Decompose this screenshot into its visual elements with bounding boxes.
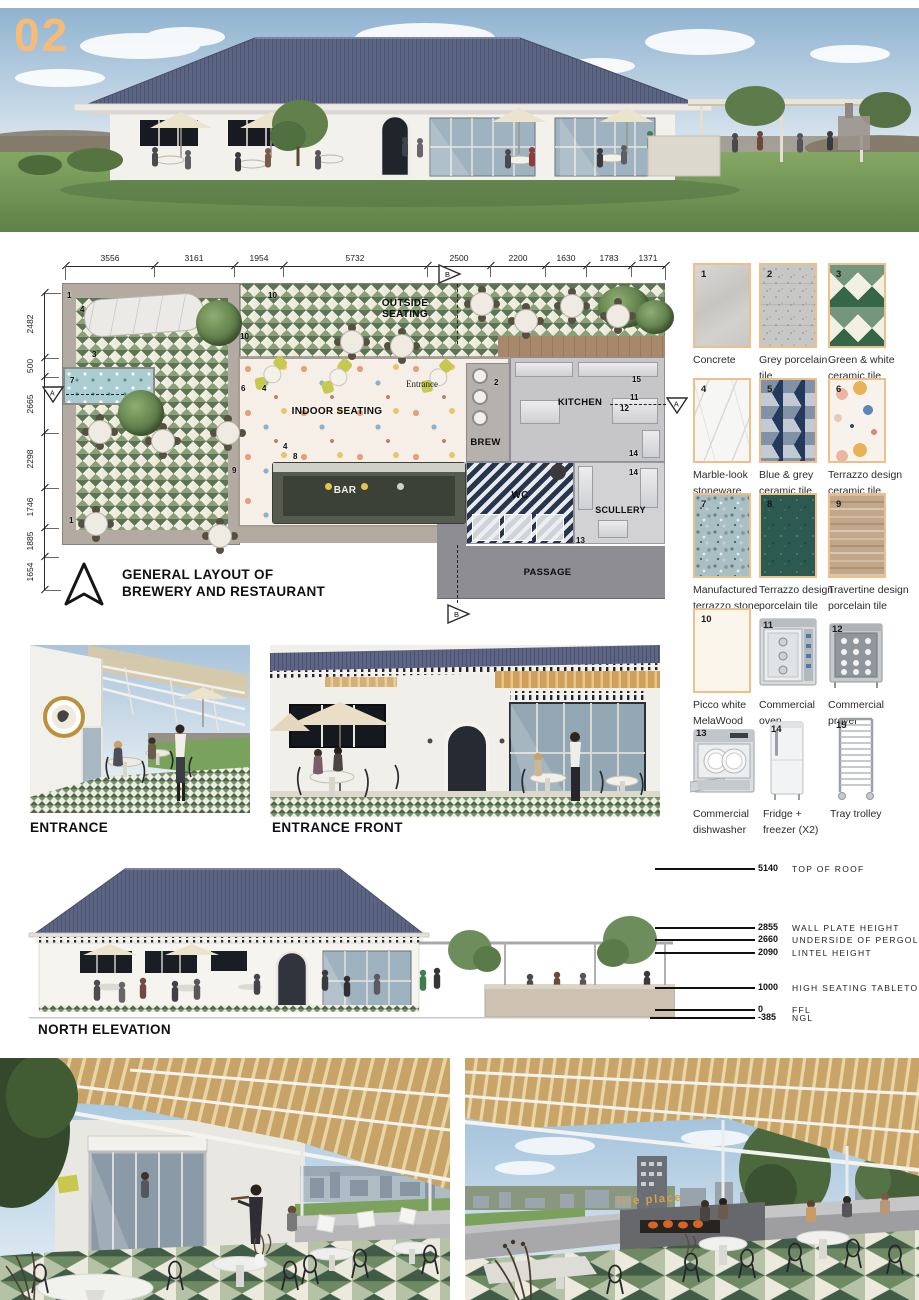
dim-extension [154, 266, 155, 277]
dimension-label: 1371 [639, 253, 658, 263]
plan-title-line2: BREWERY AND RESTAURANT [122, 583, 325, 600]
dimension-label: 1630 [557, 253, 576, 263]
dim-extension [545, 266, 546, 277]
dimension-label: 1654 [25, 554, 35, 590]
dim-extension [45, 358, 59, 359]
material-number: 7 [701, 499, 706, 510]
material-label: Terrazzo design [759, 582, 833, 598]
plan-table [151, 429, 175, 453]
room-label-scullery: SCULLERY [578, 505, 663, 515]
plan-material-marker: 7 [70, 376, 74, 385]
material-number: 6 [836, 384, 841, 395]
plan-material-marker: 8 [293, 452, 297, 461]
plan-brew-tank [472, 410, 488, 426]
room-label-bar: BAR [320, 485, 370, 496]
room-label-indoor-seating: INDOOR SEATING [262, 406, 412, 417]
plan-brew-tank [472, 368, 488, 384]
plan-kitchen-equipment [642, 430, 660, 458]
plan-material-marker: 4 [283, 442, 287, 451]
dim-extension [234, 266, 235, 277]
material-swatch-terrazzo-ceramic: 6 [828, 378, 886, 463]
plan-kitchen-bench [515, 362, 573, 377]
material-swatch-travertine: 9 [828, 493, 886, 578]
plan-table [390, 334, 414, 358]
dim-extension [65, 266, 66, 280]
material-swatch-blue-grey-cube: 5 [759, 378, 817, 463]
plan-material-marker: 10 [268, 291, 277, 300]
plan-title-line1: GENERAL LAYOUT OF [122, 566, 325, 583]
plan-material-marker: 13 [576, 536, 585, 545]
dim-extension [45, 377, 59, 378]
level-line [650, 1017, 755, 1019]
north-elevation-drawing [25, 855, 675, 1023]
plan-title: GENERAL LAYOUT OF BREWERY AND RESTAURANT [122, 566, 325, 600]
room-label-outside-seating: OUTSIDE SEATING [330, 298, 480, 320]
plan-material-marker: 12 [620, 404, 629, 413]
dim-extension [45, 293, 61, 294]
level-value: 2090 [758, 947, 778, 957]
material-label: dishwasher [693, 822, 746, 838]
level-label: HIGH SEATING TABLETOP [792, 983, 919, 993]
plan-scullery-bench [598, 520, 628, 538]
hero-exterior-illustration [0, 8, 919, 232]
room-label-brew: BREW [458, 437, 513, 448]
dimension-label: 2500 [450, 253, 469, 263]
entrance-render [30, 645, 250, 813]
section-cut-line [457, 545, 458, 603]
material-label: porcelain tile [828, 598, 887, 614]
entrance-front-render [270, 645, 660, 817]
dim-extension [631, 266, 632, 277]
terrace-render-right: fire place [465, 1058, 919, 1300]
plan-left-dimension-line [44, 293, 45, 590]
plan-material-marker: 9 [232, 466, 236, 475]
material-label: Fridge + [763, 806, 802, 822]
dimension-label: 1783 [600, 253, 619, 263]
material-label: Grey porcelain [759, 352, 827, 368]
plan-material-marker: 10 [240, 332, 249, 341]
terrace-right-illustration [465, 1058, 919, 1300]
material-label: Commercial [693, 806, 749, 822]
material-label: Commercial [828, 697, 884, 713]
material-number: 1 [701, 269, 706, 280]
plan-table [606, 304, 630, 328]
material-number: 11 [763, 620, 773, 631]
dim-extension [45, 488, 59, 489]
plan-table [216, 421, 240, 445]
plan-planter-tree [196, 300, 242, 346]
section-flag-icon: A [666, 397, 688, 415]
plan-table [84, 512, 108, 536]
material-label: Blue & grey [759, 467, 813, 483]
dim-extension [283, 266, 284, 277]
dimension-label: 2200 [509, 253, 528, 263]
plan-material-marker: 11 [630, 393, 638, 402]
section-flag-icon: B [438, 264, 462, 284]
level-label: WALL PLATE HEIGHT [792, 923, 900, 933]
level-label: UNDERSIDE OF PERGOLA [792, 935, 919, 945]
dim-extension [45, 433, 59, 434]
dim-extension [586, 266, 587, 277]
plan-material-marker: 4 [262, 384, 266, 393]
plan-material-marker: 2 [494, 378, 498, 387]
plan-material-marker: 4 [80, 305, 84, 314]
dim-extension [490, 266, 491, 277]
dimension-label: 5732 [346, 253, 365, 263]
dimension-label: 1746 [25, 489, 35, 525]
material-swatch-green-white-ceramic: 3 [828, 263, 886, 348]
plan-south-walkway [238, 527, 438, 543]
equipment-photo-oven: 11 [757, 616, 819, 690]
material-number: 13 [696, 728, 707, 739]
level-value: 5140 [758, 863, 778, 873]
plan-wc-stall [472, 514, 500, 541]
equipment-photo-prover: 12 [826, 620, 886, 690]
material-swatch-marble: 4 [693, 378, 751, 463]
level-line [655, 952, 755, 954]
level-line [655, 987, 755, 989]
page-number: 02 [14, 8, 69, 62]
material-swatch-picco-melawood: 10 [693, 608, 751, 693]
level-line [655, 1009, 755, 1011]
plan-scullery-bench [640, 468, 658, 508]
plan-material-marker: 15 [632, 375, 641, 384]
plan-material-marker: 1 [69, 516, 73, 525]
plan-material-marker: 3 [92, 350, 96, 359]
room-label-passage: PASSAGE [500, 567, 595, 578]
level-line [655, 939, 755, 941]
material-label: Marble-look [693, 467, 748, 483]
plan-material-marker: 14 [629, 468, 638, 477]
section-letter: B [445, 270, 450, 279]
dimension-label: 2298 [25, 441, 35, 477]
section-flag-icon: B [447, 604, 471, 624]
equipment-photo-tray-trolley: 15 [830, 716, 882, 802]
dim-extension [45, 590, 61, 591]
plan-wc-basin [550, 464, 566, 480]
equipment-photo-fridge: 14 [765, 720, 809, 802]
dim-tick [662, 262, 670, 270]
material-label: freezer (X2) [763, 822, 818, 838]
entrance-render-label: ENTRANCE [30, 820, 108, 835]
material-label: Concrete [693, 352, 736, 368]
entrance-front-illustration [270, 645, 660, 817]
room-label-line: SEATING [330, 309, 480, 320]
material-number: 14 [771, 724, 782, 735]
plan-bar-back [283, 476, 455, 516]
level-value: 2660 [758, 934, 778, 944]
material-number: 8 [767, 499, 772, 510]
section-letter: B [454, 610, 459, 619]
level-value: 2855 [758, 922, 778, 932]
dim-extension [427, 266, 428, 277]
plan-table [88, 420, 112, 444]
material-number: 2 [767, 269, 772, 280]
material-label: Manufactured [693, 582, 757, 598]
level-value: -385 [758, 1012, 776, 1022]
material-number: 3 [836, 269, 841, 280]
dimension-label: 3161 [185, 253, 204, 263]
section-letter: A [674, 402, 679, 409]
dimension-label: 3556 [101, 253, 120, 263]
plan-table [560, 294, 584, 318]
dimension-label: 500 [25, 348, 35, 384]
material-swatch-concrete: 1 [693, 263, 751, 348]
entrance-front-render-label: ENTRANCE FRONT [272, 820, 403, 835]
section-cut-line [66, 394, 124, 395]
material-swatch-manufactured-terrazzo: 7 [693, 493, 751, 578]
level-line [655, 868, 755, 870]
plan-kitchen-bench [578, 362, 658, 377]
plan-table [208, 524, 232, 548]
level-value: 1000 [758, 982, 778, 992]
room-label-kitchen: KITCHEN [540, 397, 620, 408]
plan-brew-tank [472, 389, 488, 405]
dimension-label: 2482 [25, 306, 35, 342]
material-label: Picco white [693, 697, 746, 713]
plan-bar-sink [397, 483, 404, 490]
material-number: 9 [836, 499, 841, 510]
section-letter: A [50, 391, 55, 398]
dim-extension [665, 266, 666, 280]
north-arrow-icon [62, 560, 106, 608]
plan-bar-countertop [273, 463, 465, 472]
material-number: 10 [701, 614, 712, 625]
material-label: Tray trolley [830, 806, 882, 822]
dim-extension [45, 528, 59, 529]
plan-wc-stall [536, 514, 564, 541]
room-label-wc: WC [505, 490, 535, 501]
dim-extension [45, 557, 59, 558]
terrace-left-illustration [0, 1058, 450, 1300]
material-number: 12 [832, 624, 843, 635]
level-line [655, 927, 755, 929]
material-swatch-terrazzo-porcelain: 8 [759, 493, 817, 578]
level-label: TOP OF ROOF [792, 864, 865, 874]
material-label: Green & white [828, 352, 895, 368]
plan-scullery-rack [578, 466, 593, 510]
plan-material-marker: 6 [241, 384, 245, 393]
entrance-illustration [30, 645, 250, 813]
presentation-board: { "page": { "number": "02" }, "colors": … [0, 0, 919, 1300]
north-elevation-label: NORTH ELEVATION [38, 1022, 171, 1037]
plan-table [340, 330, 364, 354]
material-label: Commercial [759, 697, 815, 713]
material-label: porcelain tile [759, 598, 818, 614]
plan-table [514, 309, 538, 333]
section-flag-icon: A [42, 386, 64, 404]
plan-wc-stall [504, 514, 532, 541]
material-number: 15 [836, 720, 847, 731]
hero-exterior-render [0, 8, 919, 232]
plan-material-marker: 14 [629, 449, 638, 458]
dimension-label: 1954 [250, 253, 269, 263]
plan-planter-tree [636, 300, 674, 334]
equipment-photo-dishwasher: 13 [690, 724, 760, 800]
dimension-label: 2665 [25, 386, 35, 422]
room-label-line: OUTSIDE [330, 298, 480, 309]
level-label: LINTEL HEIGHT [792, 948, 872, 958]
plan-material-marker: 1 [67, 291, 71, 300]
terrace-render-left [0, 1058, 450, 1300]
material-label: Terrazzo design [828, 467, 902, 483]
level-label: NGL [792, 1013, 813, 1023]
north-elevation-illustration [25, 855, 675, 1023]
material-number: 4 [701, 384, 706, 395]
material-swatch-grey-porcelain: 2 [759, 263, 817, 348]
material-label: Travertine design [828, 582, 909, 598]
material-number: 5 [767, 384, 772, 395]
room-label-entrance: Entrance [406, 379, 438, 389]
